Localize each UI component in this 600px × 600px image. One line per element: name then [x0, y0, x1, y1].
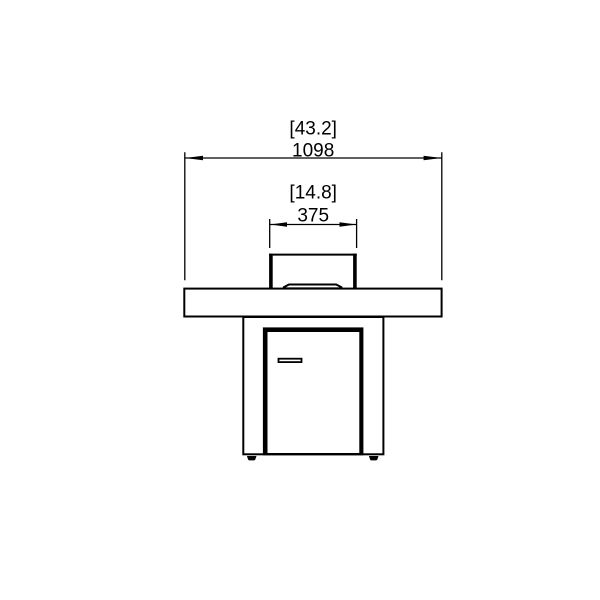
- svg-text:[43.2]: [43.2]: [289, 119, 337, 140]
- svg-text:375: 375: [297, 205, 329, 226]
- svg-text:[14.8]: [14.8]: [289, 182, 337, 203]
